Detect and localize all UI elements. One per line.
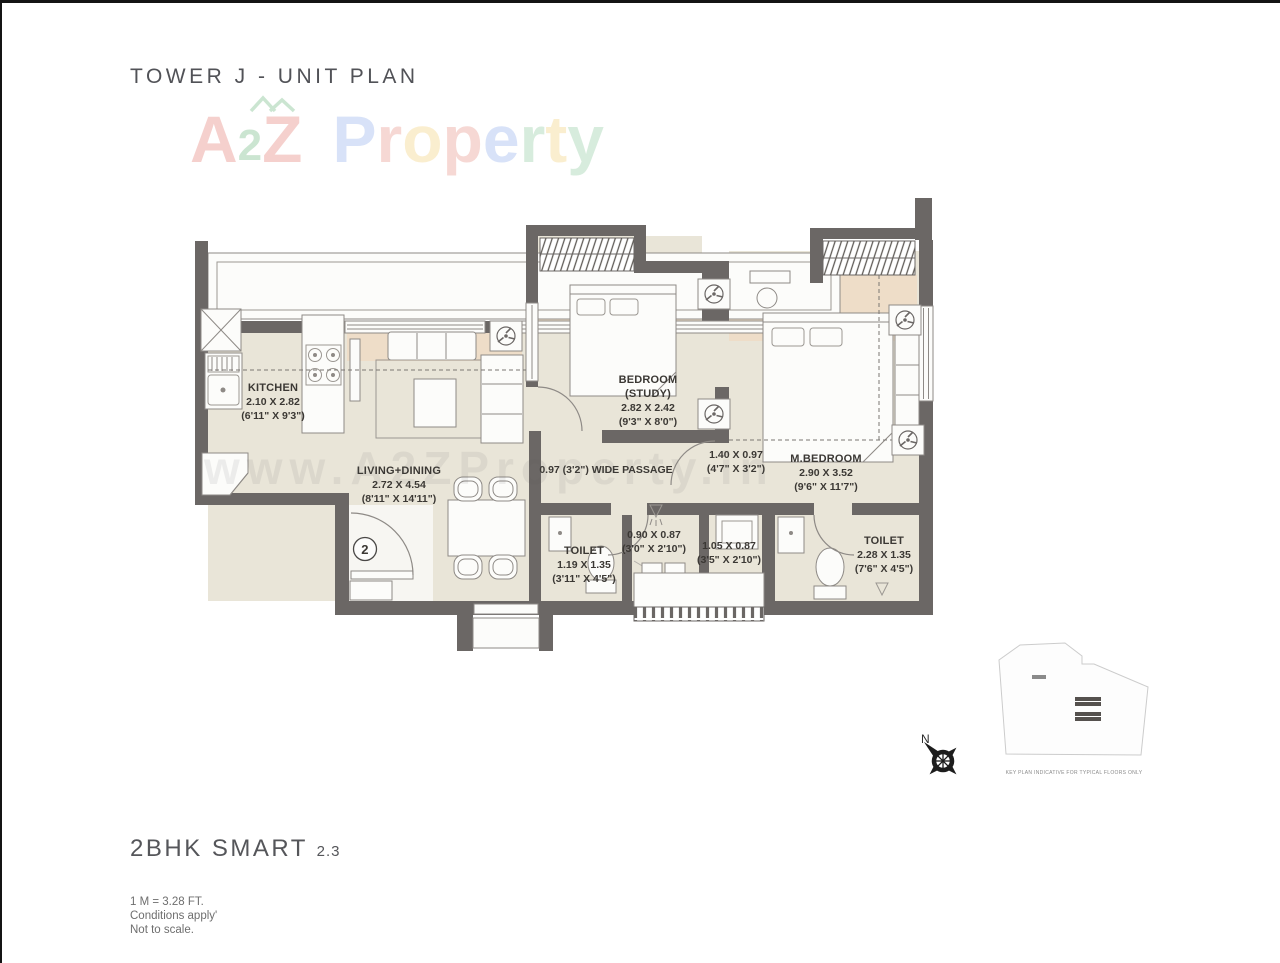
utility-dim-m: 1.05 X 0.87 xyxy=(702,540,756,552)
dining-chair xyxy=(489,555,517,579)
study-dim-m: 2.82 X 2.42 xyxy=(621,402,675,414)
study-label: BEDROOM xyxy=(619,374,678,386)
fine-print-line: 1 M = 3.28 FT. xyxy=(130,895,217,909)
shower-dim-ft: (3'0" X 2'10") xyxy=(622,543,686,555)
unit-plan-page: TOWER J - UNIT PLAN A2ZProperty xyxy=(0,0,1280,963)
ceiling-fan-icon xyxy=(889,305,921,335)
master-bedroom-dim-m: 2.90 X 3.52 xyxy=(799,467,853,479)
compass-icon: N xyxy=(910,728,969,787)
plan-name: 2BHK SMART 2.3 xyxy=(130,835,341,863)
kitchen-dim-ft: (6'11" X 9'3") xyxy=(241,410,304,422)
passage-lobby-dim-m: 1.40 X 0.97 xyxy=(709,449,763,461)
passage-label: 0.97 (3'2") WIDE PASSAGE xyxy=(539,464,672,476)
ceiling-fan-icon xyxy=(698,279,730,309)
living-dim-ft: (8'11" X 14'11") xyxy=(362,493,437,505)
floorplan-svg: 2 KITCHEN 2.10 X 2.82 (6'11" X 9'3") LIV… xyxy=(2,3,1280,963)
ceiling-fan-icon xyxy=(698,399,730,429)
toilet-master-dim-ft: (7'6" X 4'5") xyxy=(855,563,913,575)
plan-variant-text: 2.3 xyxy=(317,843,341,860)
utility-dim-ft: (3'5" X 2'10") xyxy=(697,554,761,566)
kitchen-label: KITCHEN xyxy=(248,382,298,394)
passage-lobby-dim-ft: (4'7" X 3'2") xyxy=(707,463,765,475)
fine-print-line: Not to scale. xyxy=(130,923,217,937)
compass-north-label: N xyxy=(921,732,930,746)
ceiling-fan-icon xyxy=(892,425,924,455)
study-sublabel: (STUDY) xyxy=(625,388,671,400)
toilet-common-label: TOILET xyxy=(564,545,604,557)
key-plan-caption: KEY PLAN INDICATIVE FOR TYPICAL FLOORS O… xyxy=(1006,770,1143,776)
living-label: LIVING+DINING xyxy=(357,465,441,477)
dining-chair xyxy=(489,477,517,501)
toilet-common-dim-m: 1.19 X 1.35 xyxy=(557,559,611,571)
living-dim-m: 2.72 X 4.54 xyxy=(372,479,426,491)
ceiling-fan-icon xyxy=(490,321,522,351)
master-bedroom-label: M.BEDROOM xyxy=(790,453,861,465)
shower-dim-m: 0.90 X 0.87 xyxy=(627,529,681,541)
kitchen-dim-m: 2.10 X 2.82 xyxy=(246,396,300,408)
toilet-master-dim-m: 2.28 X 1.35 xyxy=(857,549,911,561)
study-dim-ft: (9'3" X 8'0") xyxy=(619,416,677,428)
deck xyxy=(208,253,840,319)
dining-chair xyxy=(454,555,482,579)
fine-print: 1 M = 3.28 FT. Conditions apply' Not to … xyxy=(130,895,217,937)
key-plan: KEY PLAN INDICATIVE FOR TYPICAL FLOORS O… xyxy=(999,643,1148,776)
toilet-common-dim-ft: (3'11" X 4'5") xyxy=(552,573,615,585)
fine-print-line: Conditions apply' xyxy=(130,909,217,923)
master-bedroom-dim-ft: (9'6" X 11'7") xyxy=(794,481,857,493)
plan-name-text: 2BHK SMART xyxy=(130,835,308,862)
entrance-number: 2 xyxy=(361,542,368,557)
dining-chair xyxy=(454,477,482,501)
toilet-master-label: TOILET xyxy=(864,535,904,547)
